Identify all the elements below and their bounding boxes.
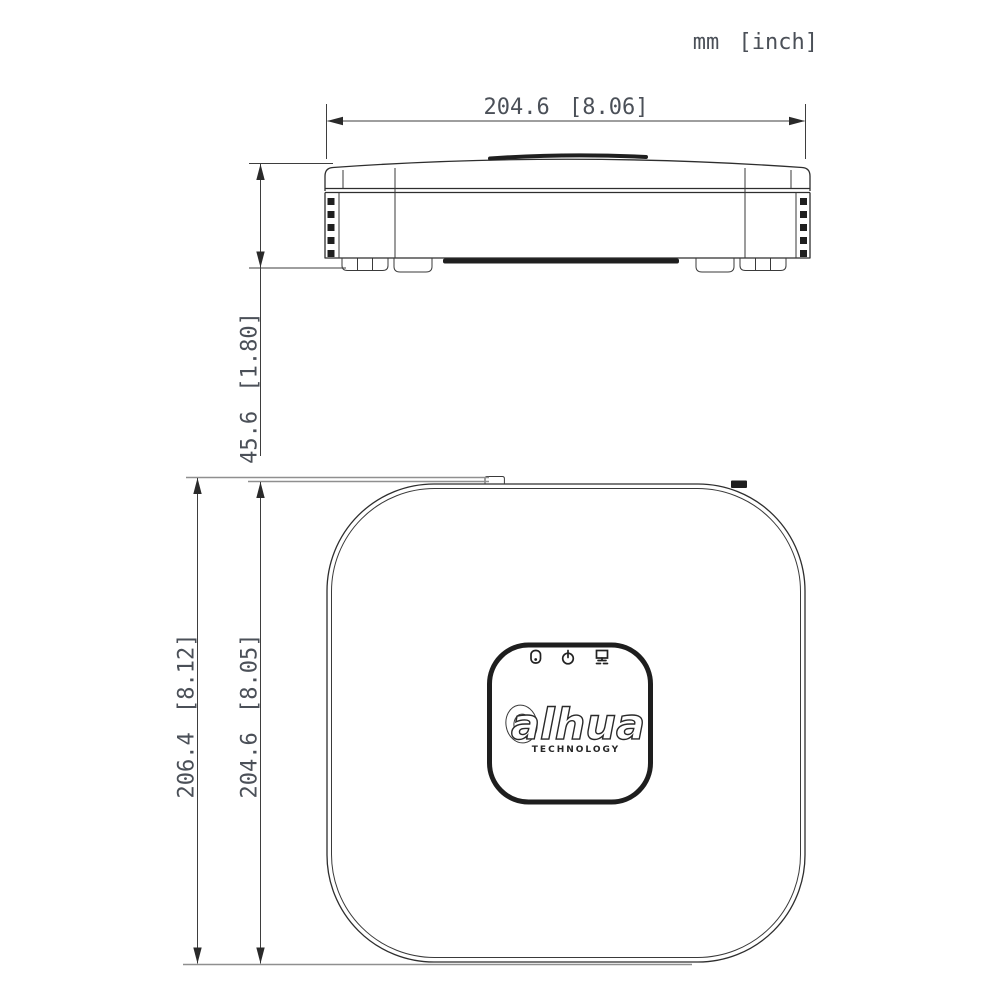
front-body: [325, 193, 810, 259]
dim-front-width-label: 204.6 [8.06]: [484, 95, 649, 120]
dim-top-body-label: 204.6 [8.05]: [238, 634, 263, 799]
arrow-up-icon: [256, 482, 264, 498]
arrow-right-icon: [789, 117, 805, 125]
left-vents-icon: [328, 198, 335, 257]
logo-wordmark: alhua: [511, 700, 645, 750]
left-segmented-foot: [342, 258, 388, 271]
arrow-up-icon: [193, 478, 201, 494]
arrow-down-icon: [256, 948, 264, 964]
dim-front-height-label: 45.6 [1.80]: [238, 312, 263, 464]
dim-front-width: 204.6 [8.06]: [327, 95, 806, 159]
dimension-drawing-page: mm [inch]: [0, 0, 1000, 1000]
top-view: alhua TECHNOLOGY: [327, 477, 805, 963]
arrow-down-icon: [193, 948, 201, 964]
arrow-left-icon: [327, 117, 343, 125]
top-edge-button: [731, 481, 747, 489]
arrow-down-icon: [256, 252, 264, 268]
units-label: mm [inch]: [693, 30, 818, 55]
left-foot-dividers: [358, 259, 373, 271]
dim-front-height: 45.6 [1.80]: [238, 164, 347, 464]
dim-top-body-depth: 204.6 [8.05]: [238, 482, 490, 964]
left-round-foot: [394, 258, 432, 272]
lid-left-edge: [325, 168, 333, 192]
dahua-logo: alhua TECHNOLOGY: [503, 700, 645, 755]
right-segmented-foot: [740, 258, 786, 271]
lid-top-highlight: [490, 155, 646, 158]
front-view: [325, 155, 810, 272]
right-vents-icon: [800, 198, 807, 257]
dim-top-overall-label: 206.4 [8.12]: [175, 634, 200, 799]
logo-tagline: TECHNOLOGY: [532, 745, 620, 755]
lid-right-edge: [802, 168, 810, 192]
dimensions: 204.6 [8.06] 45.6 [1.80] 206.4 [8.12] 20…: [175, 95, 806, 965]
bottom-recess-bar: [443, 259, 679, 264]
right-round-foot: [696, 258, 734, 272]
lid-top-edge: [333, 159, 802, 167]
technical-drawing: mm [inch]: [0, 0, 1000, 1000]
right-foot-dividers: [756, 259, 771, 271]
feet: [342, 258, 786, 272]
arrow-up-icon: [256, 164, 264, 180]
